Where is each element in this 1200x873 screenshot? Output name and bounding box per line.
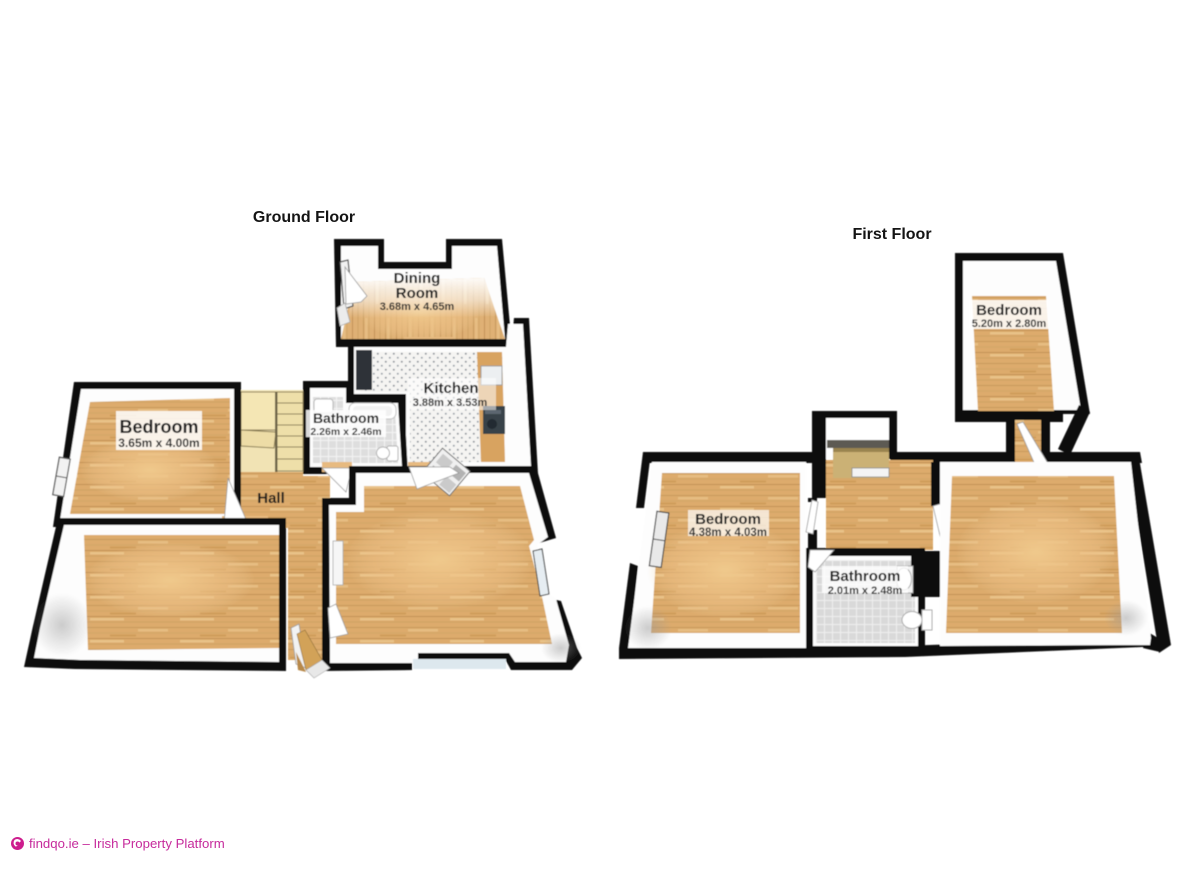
svg-text:Bedroom: Bedroom xyxy=(119,417,198,437)
svg-text:Kitchen: Kitchen xyxy=(423,380,478,397)
svg-text:Ground Floor: Ground Floor xyxy=(253,209,355,226)
svg-text:3.65m x 4.00m: 3.65m x 4.00m xyxy=(118,436,199,450)
svg-text:4.38m x 4.03m: 4.38m x 4.03m xyxy=(689,527,767,539)
svg-text:First Floor: First Floor xyxy=(852,226,931,243)
svg-text:Bedroom: Bedroom xyxy=(695,511,761,528)
svg-text:2.26m x 2.46m: 2.26m x 2.46m xyxy=(310,426,381,438)
svg-text:Bathroom: Bathroom xyxy=(830,568,901,585)
svg-text:Hall: Hall xyxy=(257,490,285,507)
svg-text:Bathroom: Bathroom xyxy=(313,410,379,426)
svg-text:3.68m x 4.65m: 3.68m x 4.65m xyxy=(380,301,455,313)
svg-text:Bedroom: Bedroom xyxy=(976,302,1042,319)
svg-text:findqo.ie – Irish Property Pla: findqo.ie – Irish Property Platform xyxy=(29,836,225,851)
svg-text:2.01m x 2.48m: 2.01m x 2.48m xyxy=(828,585,903,597)
svg-text:3.88m x 3.53m: 3.88m x 3.53m xyxy=(413,397,488,409)
svg-text:Room: Room xyxy=(396,285,439,302)
svg-text:5.20m x 2.80m: 5.20m x 2.80m xyxy=(972,318,1047,330)
